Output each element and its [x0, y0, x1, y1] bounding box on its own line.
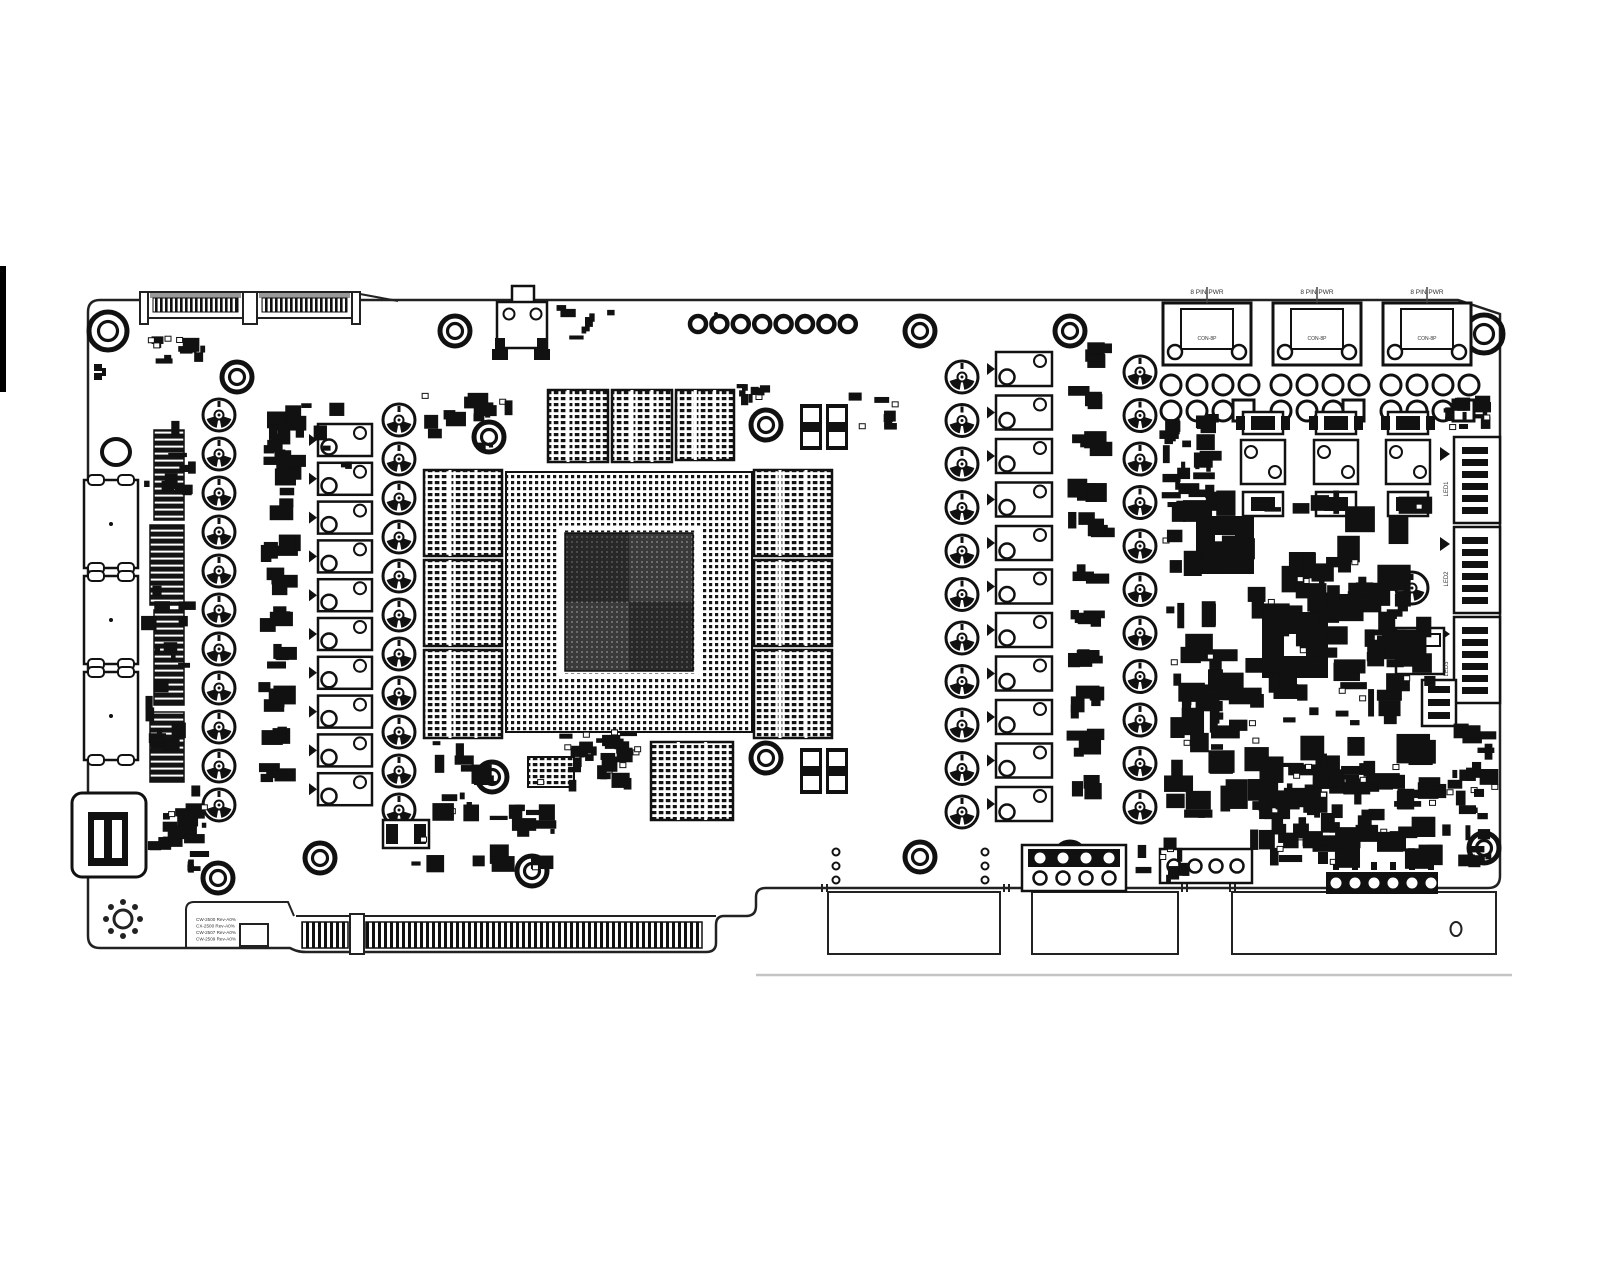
inductor-pad: [1000, 544, 1015, 559]
component-blob: [1333, 491, 1339, 514]
component-blob: [270, 612, 293, 626]
capacitor-mark: [961, 711, 964, 717]
via-pair: [982, 877, 989, 884]
inductor-pad: [322, 556, 337, 571]
hdmi-pad-slot: [94, 820, 104, 858]
capacitor-mark: [961, 755, 964, 761]
connector-mount-pad: [88, 755, 104, 765]
component-blob: [1363, 761, 1375, 777]
header-pin: [1080, 872, 1093, 885]
connector-slot-pad: [1462, 495, 1488, 502]
component-blob: [456, 743, 464, 757]
component-blob: [1186, 791, 1211, 810]
component-blob: [1468, 725, 1481, 737]
sun-symbol-ray: [132, 928, 138, 934]
power-connector-label: 8 PIN PWR: [1300, 289, 1334, 296]
inductor-pad: [354, 466, 366, 478]
component-blob: [1450, 425, 1456, 430]
board-note-line: CW-2507 Rev-A0%: [196, 930, 236, 935]
capacitor-center-dot: [218, 453, 221, 456]
capacitor-center-dot: [218, 687, 221, 690]
twin-pad-window: [803, 776, 819, 790]
via-pair: [833, 877, 840, 884]
component-blob: [1471, 808, 1478, 813]
capacitor-center-dot: [1411, 587, 1414, 590]
component-blob: [757, 388, 764, 396]
component-blob: [892, 402, 898, 407]
component-blob: [1165, 419, 1179, 434]
component-blob: [1089, 432, 1102, 440]
component-blob: [1455, 398, 1460, 409]
component-blob: [1196, 434, 1214, 450]
component-blob: [1335, 847, 1360, 867]
component-blob: [1086, 483, 1107, 502]
connector-mount-pad: [118, 571, 134, 581]
memory-chip: [651, 742, 733, 820]
switch-pad: [504, 309, 515, 320]
component-blob: [1356, 582, 1373, 595]
component-blob: [1196, 415, 1212, 428]
via: [109, 714, 113, 718]
capacitor-center-dot: [218, 414, 221, 417]
bottom-bracket-tab: [828, 892, 1000, 954]
component-blob: [171, 655, 176, 662]
component-blob: [1212, 712, 1223, 719]
fiducial-mark: [94, 373, 102, 380]
capacitor-mark: [218, 596, 221, 602]
component-blob: [530, 820, 556, 828]
power-pin-pad: [1271, 375, 1291, 395]
memory-chip: [754, 470, 832, 556]
capacitor-mark: [1411, 574, 1414, 580]
sli-slot: [243, 292, 257, 324]
connector-slot-pad: [1462, 687, 1488, 694]
capacitor-mark: [1139, 619, 1142, 625]
component-blob: [509, 805, 522, 819]
component-blob: [1327, 585, 1340, 614]
capacitor-mark: [398, 445, 401, 451]
component-blob: [1469, 846, 1485, 852]
inductor-pad: [354, 699, 366, 711]
component-blob: [1334, 659, 1366, 673]
component-blob: [1405, 848, 1429, 868]
capacitor-mark: [218, 518, 221, 524]
inductor-pad: [322, 711, 337, 726]
capacitor-center-dot: [398, 419, 401, 422]
capacitor-center-dot: [1139, 719, 1142, 722]
component-blob: [505, 400, 513, 415]
component-blob: [1385, 612, 1397, 619]
component-blob: [559, 734, 572, 739]
component-blob: [301, 403, 311, 408]
component-blob: [1212, 604, 1216, 626]
component-blob: [1088, 519, 1104, 536]
component-blob: [1182, 708, 1204, 735]
component-blob: [1182, 441, 1191, 448]
component-blob: [565, 745, 571, 750]
inductor-pad: [354, 660, 366, 672]
component-blob: [1071, 696, 1085, 712]
component-blob: [1210, 757, 1233, 774]
capacitor-center-dot: [961, 593, 964, 596]
component-blob: [1190, 733, 1209, 752]
component-blob: [272, 583, 287, 595]
component-blob: [1168, 866, 1179, 879]
filter-cap-body: [1251, 416, 1275, 430]
header-pin: [1210, 860, 1223, 873]
capacitor-mark: [398, 523, 401, 529]
component-blob: [1477, 748, 1494, 753]
component-blob: [1287, 614, 1319, 626]
capacitor-center-dot: [218, 648, 221, 651]
component-blob: [411, 861, 420, 865]
header-pin: [1081, 853, 1092, 864]
connector-slot-pad: [1462, 573, 1488, 580]
component-blob: [267, 661, 286, 668]
inductor-pad: [322, 672, 337, 687]
inductor-pad: [1034, 703, 1046, 715]
component-blob: [194, 352, 203, 362]
component-blob: [1184, 551, 1202, 576]
component-blob: [1166, 606, 1174, 613]
component-blob: [1222, 536, 1241, 564]
component-blob: [171, 421, 179, 436]
component-blob: [158, 837, 171, 850]
component-blob: [155, 644, 160, 654]
twin-pad-window: [803, 752, 819, 766]
component-blob: [1204, 541, 1225, 571]
component-blob: [1180, 863, 1186, 874]
power-pin-pad: [1213, 375, 1233, 395]
connector-slot-pad: [1462, 561, 1488, 568]
component-blob: [1170, 560, 1182, 573]
component-blob: [1303, 552, 1316, 578]
component-blob: [1465, 825, 1470, 840]
component-blob: [1297, 577, 1303, 582]
inductor-pad: [1000, 761, 1015, 776]
component-blob: [1397, 790, 1421, 798]
power-connector-keyway: [1401, 309, 1453, 349]
capacitor-mark: [1139, 663, 1142, 669]
component-blob: [421, 837, 427, 842]
component-blob: [162, 481, 175, 493]
component-blob: [177, 810, 198, 826]
power-pin-pad: [1323, 375, 1343, 395]
component-blob: [569, 780, 577, 792]
header-pin: [1035, 853, 1046, 864]
component-blob: [1384, 708, 1397, 724]
power-pin-pad: [1297, 375, 1317, 395]
component-blob: [1163, 445, 1170, 463]
inductor-pad: [354, 737, 366, 749]
component-blob: [187, 865, 193, 871]
inductor-pad: [1390, 446, 1402, 458]
capacitor-center-dot: [218, 726, 221, 729]
component-blob: [258, 682, 270, 692]
switch-actuator: [512, 286, 534, 303]
component-blob: [442, 794, 458, 801]
capacitor-center-dot: [1139, 371, 1142, 374]
component-blob: [1393, 765, 1399, 770]
component-blob: [1350, 720, 1360, 725]
memory-chip: [676, 390, 734, 460]
component-blob: [539, 804, 555, 820]
inductor-pad: [1000, 674, 1015, 689]
inductor-pad: [354, 582, 366, 594]
component-blob: [288, 416, 306, 431]
connector-slot-pad: [1462, 597, 1488, 604]
power-connector-label: 8 PIN PWR: [1190, 289, 1224, 296]
component-blob: [1352, 560, 1358, 565]
sli-slot: [140, 292, 148, 324]
test-point-ring: [690, 316, 706, 332]
component-blob: [1280, 658, 1303, 670]
component-blob: [1454, 724, 1469, 739]
filter-cap-pad: [1309, 416, 1318, 430]
sun-symbol-ray: [120, 899, 126, 905]
capacitor-center-dot: [961, 767, 964, 770]
test-point-ring: [754, 316, 770, 332]
via-pair: [833, 849, 840, 856]
memory-chip: [612, 390, 672, 462]
component-blob: [154, 679, 169, 693]
component-blob: [1321, 754, 1326, 774]
capacitor-mark: [1139, 445, 1142, 451]
capacitor-center-dot: [1139, 414, 1142, 417]
component-blob: [1164, 435, 1173, 444]
component-blob: [1072, 781, 1083, 796]
component-blob: [1430, 800, 1436, 805]
component-blob: [1162, 492, 1181, 498]
component-blob: [1283, 833, 1298, 849]
header-pin: [1231, 860, 1244, 873]
component-blob: [1300, 648, 1306, 653]
component-blob: [1177, 848, 1182, 862]
inductor-pad: [322, 789, 337, 804]
component-blob: [432, 803, 454, 821]
component-blob: [200, 346, 205, 353]
capacitor-mark: [961, 537, 964, 543]
component-blob: [1447, 790, 1453, 795]
component-blob: [270, 505, 294, 520]
component-blob: [262, 730, 283, 745]
component-blob: [1297, 684, 1307, 700]
component-blob: [1178, 683, 1205, 702]
component-blob: [1168, 502, 1182, 507]
sli-gold-fingers: [262, 298, 347, 312]
capacitor-mark: [218, 635, 221, 641]
capacitor-center-dot: [1139, 632, 1142, 635]
filter-cap-pad: [1236, 416, 1245, 430]
board-note-line: CX-2500 Rev-A0%: [196, 924, 235, 929]
component-blob: [605, 739, 624, 749]
component-blob: [426, 855, 444, 872]
component-blob: [1250, 694, 1264, 708]
memory-chip: [424, 470, 502, 556]
via: [109, 522, 113, 526]
component-blob: [612, 730, 618, 735]
component-blob: [163, 822, 178, 832]
memory-chip: [754, 650, 832, 738]
capacitor-mark: [961, 668, 964, 674]
component-blob: [1181, 647, 1201, 663]
filter-cap-body: [1396, 416, 1420, 430]
connector-slot-pad: [1462, 585, 1488, 592]
switch-pin: [534, 349, 550, 360]
fiducial-mark: [94, 364, 102, 371]
component-blob: [742, 384, 748, 391]
component-blob: [273, 644, 281, 659]
inductor-pad: [1000, 587, 1015, 602]
capacitor-center-dot: [398, 653, 401, 656]
component-blob: [1194, 452, 1213, 467]
component-blob: [267, 770, 281, 778]
component-blob: [154, 343, 160, 348]
capacitor-center-dot: [398, 497, 401, 500]
capacitor-mark: [398, 601, 401, 607]
inductor-pad: [1034, 442, 1046, 454]
component-blob: [422, 393, 428, 398]
component-blob: [1205, 522, 1225, 527]
component-blob: [1250, 830, 1258, 850]
component-blob: [1314, 796, 1320, 818]
inductor-pad: [1034, 573, 1046, 585]
power-connector-label: 8 PIN PWR: [1410, 289, 1444, 296]
component-blob: [1216, 491, 1235, 516]
component-blob: [1136, 867, 1152, 873]
header-pin: [1104, 853, 1115, 864]
filter-cap-body: [1324, 416, 1348, 430]
component-blob: [1078, 613, 1100, 624]
inductor-pad: [1000, 370, 1015, 385]
component-blob: [1442, 824, 1450, 835]
led-connector-label: LED3: [1444, 661, 1450, 677]
test-point-ring: [776, 316, 792, 332]
component-blob: [1399, 497, 1432, 514]
component-blob: [1077, 650, 1100, 661]
scan-edge-artifact: [0, 266, 6, 392]
inductor-pad: [1034, 616, 1046, 628]
component-blob: [314, 426, 327, 441]
component-blob: [471, 765, 491, 784]
component-blob: [573, 757, 581, 767]
component-blob: [279, 498, 293, 507]
component-blob: [1277, 846, 1283, 851]
component-blob: [490, 816, 508, 820]
component-blob: [1332, 804, 1343, 818]
component-blob: [428, 429, 442, 439]
capacitor-center-dot: [961, 680, 964, 683]
inductor-pad: [1414, 466, 1426, 478]
component-blob: [190, 851, 209, 857]
filter-cap-pad: [1381, 416, 1390, 430]
connector-slot-pad: [1462, 639, 1488, 646]
header-pin: [1426, 878, 1437, 889]
twin-pad-window: [803, 408, 819, 422]
component-blob: [1244, 747, 1268, 771]
capacitor-mark: [398, 640, 401, 646]
resistor-terminal: [386, 824, 398, 844]
component-blob: [492, 856, 515, 872]
twin-pad-window: [803, 432, 819, 446]
component-blob: [1480, 769, 1499, 785]
power-pin-pad: [1407, 375, 1427, 395]
component-blob: [884, 414, 893, 422]
inductor-pad: [354, 776, 366, 788]
capacitor-center-dot: [398, 458, 401, 461]
component-blob: [859, 424, 865, 429]
inductor-pad: [354, 505, 366, 517]
component-blob: [424, 415, 438, 429]
component-blob: [1395, 594, 1411, 607]
inductor-pad: [1034, 399, 1046, 411]
component-blob: [1167, 530, 1182, 542]
component-blob: [202, 823, 206, 828]
sun-symbol: [114, 910, 132, 928]
component-blob: [583, 732, 589, 737]
header-pin: [1189, 860, 1202, 873]
connector-mount-pad: [118, 755, 134, 765]
component-blob: [1249, 721, 1255, 726]
component-blob: [1419, 777, 1441, 786]
component-blob: [607, 310, 614, 315]
connector-slot-pad: [1462, 483, 1488, 490]
component-blob: [1091, 343, 1112, 353]
pcie-gold-fingers-short: [302, 922, 348, 948]
bracket-hole: [1451, 922, 1462, 936]
component-blob: [1283, 717, 1295, 722]
component-blob: [1181, 462, 1185, 478]
capacitor-mark: [961, 450, 964, 456]
capacitor-center-dot: [398, 575, 401, 578]
inductor-pad: [354, 427, 366, 439]
sli-finger-edge: [150, 293, 241, 298]
component-blob: [446, 412, 466, 426]
inductor-pad: [322, 517, 337, 532]
test-point-ring: [711, 316, 727, 332]
component-blob: [473, 855, 485, 866]
component-blob: [1259, 797, 1270, 811]
bottom-bracket-tab: [1032, 892, 1178, 954]
via-pair: [982, 863, 989, 870]
component-blob: [1160, 855, 1166, 860]
pcb-placement-diagram: 8 PIN PWR 8 PIN PWR 8 PIN PWR CON-8P CON…: [0, 0, 1600, 1280]
component-blob: [460, 793, 465, 800]
component-blob: [1189, 490, 1206, 498]
capacitor-mark: [1139, 532, 1142, 538]
component-blob: [1478, 829, 1490, 839]
component-blob: [1404, 676, 1410, 681]
component-blob: [1263, 603, 1290, 631]
via: [714, 312, 718, 316]
component-blob: [201, 805, 207, 810]
component-blob: [1264, 507, 1281, 512]
inductor-pad: [1034, 790, 1046, 802]
component-blob: [164, 642, 178, 654]
component-blob: [1184, 810, 1212, 818]
capacitor-center-dot: [1139, 545, 1142, 548]
component-blob: [183, 338, 200, 352]
fiducial-mark: [102, 368, 106, 376]
component-blob: [1087, 729, 1104, 740]
header-pin: [1103, 872, 1116, 885]
capacitor-mark: [398, 718, 401, 724]
component-blob: [1079, 738, 1100, 751]
connector-slot-pad: [1462, 537, 1488, 544]
inductor-pad: [322, 478, 337, 493]
power-pin-pad: [1349, 375, 1369, 395]
power-pin-pad: [1433, 375, 1453, 395]
